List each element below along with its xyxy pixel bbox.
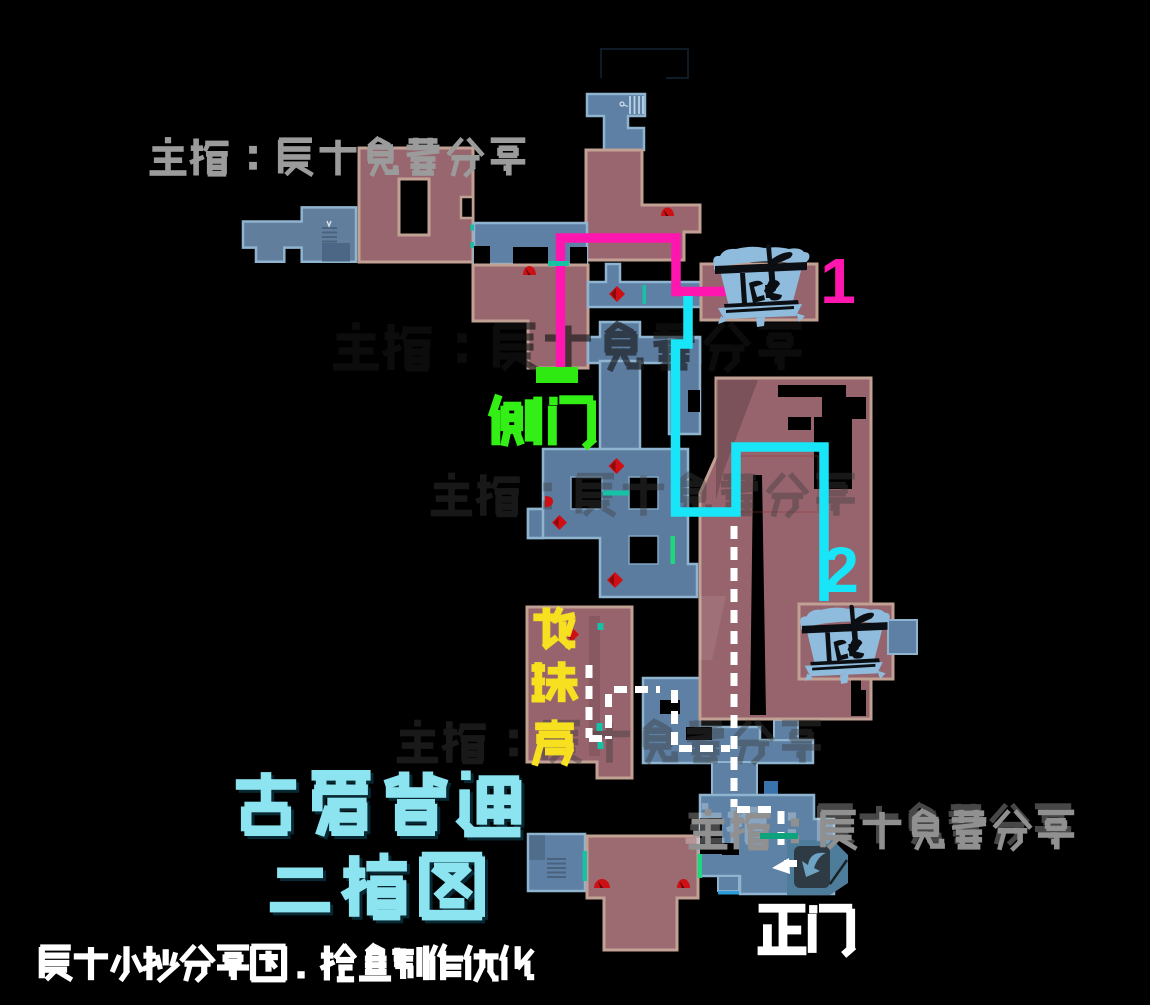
svg-text:2: 2 bbox=[823, 534, 859, 606]
svg-text:1: 1 bbox=[820, 245, 856, 317]
